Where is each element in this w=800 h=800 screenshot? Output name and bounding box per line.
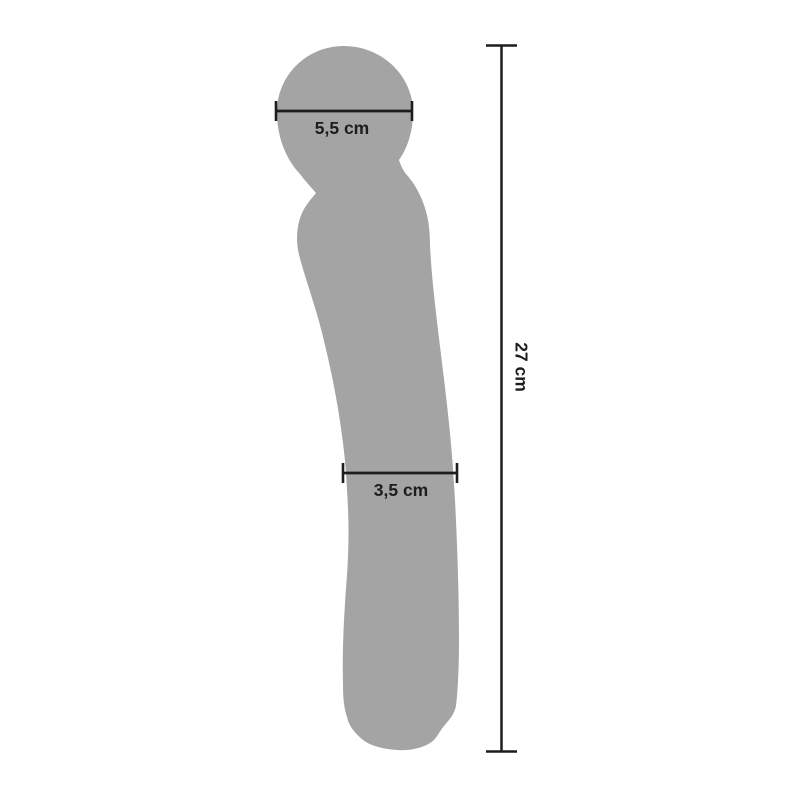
head-width-label: 5,5 cm: [315, 118, 369, 138]
dimension-diagram-canvas: 5,5 cm 3,5 cm 27 cm: [0, 0, 800, 800]
total-length-measurement: 27 cm: [486, 46, 531, 752]
shaft-width-label: 3,5 cm: [374, 480, 428, 500]
product-silhouette: [277, 46, 459, 750]
dimension-diagram: 5,5 cm 3,5 cm 27 cm: [0, 0, 800, 800]
total-length-label: 27 cm: [511, 342, 531, 392]
